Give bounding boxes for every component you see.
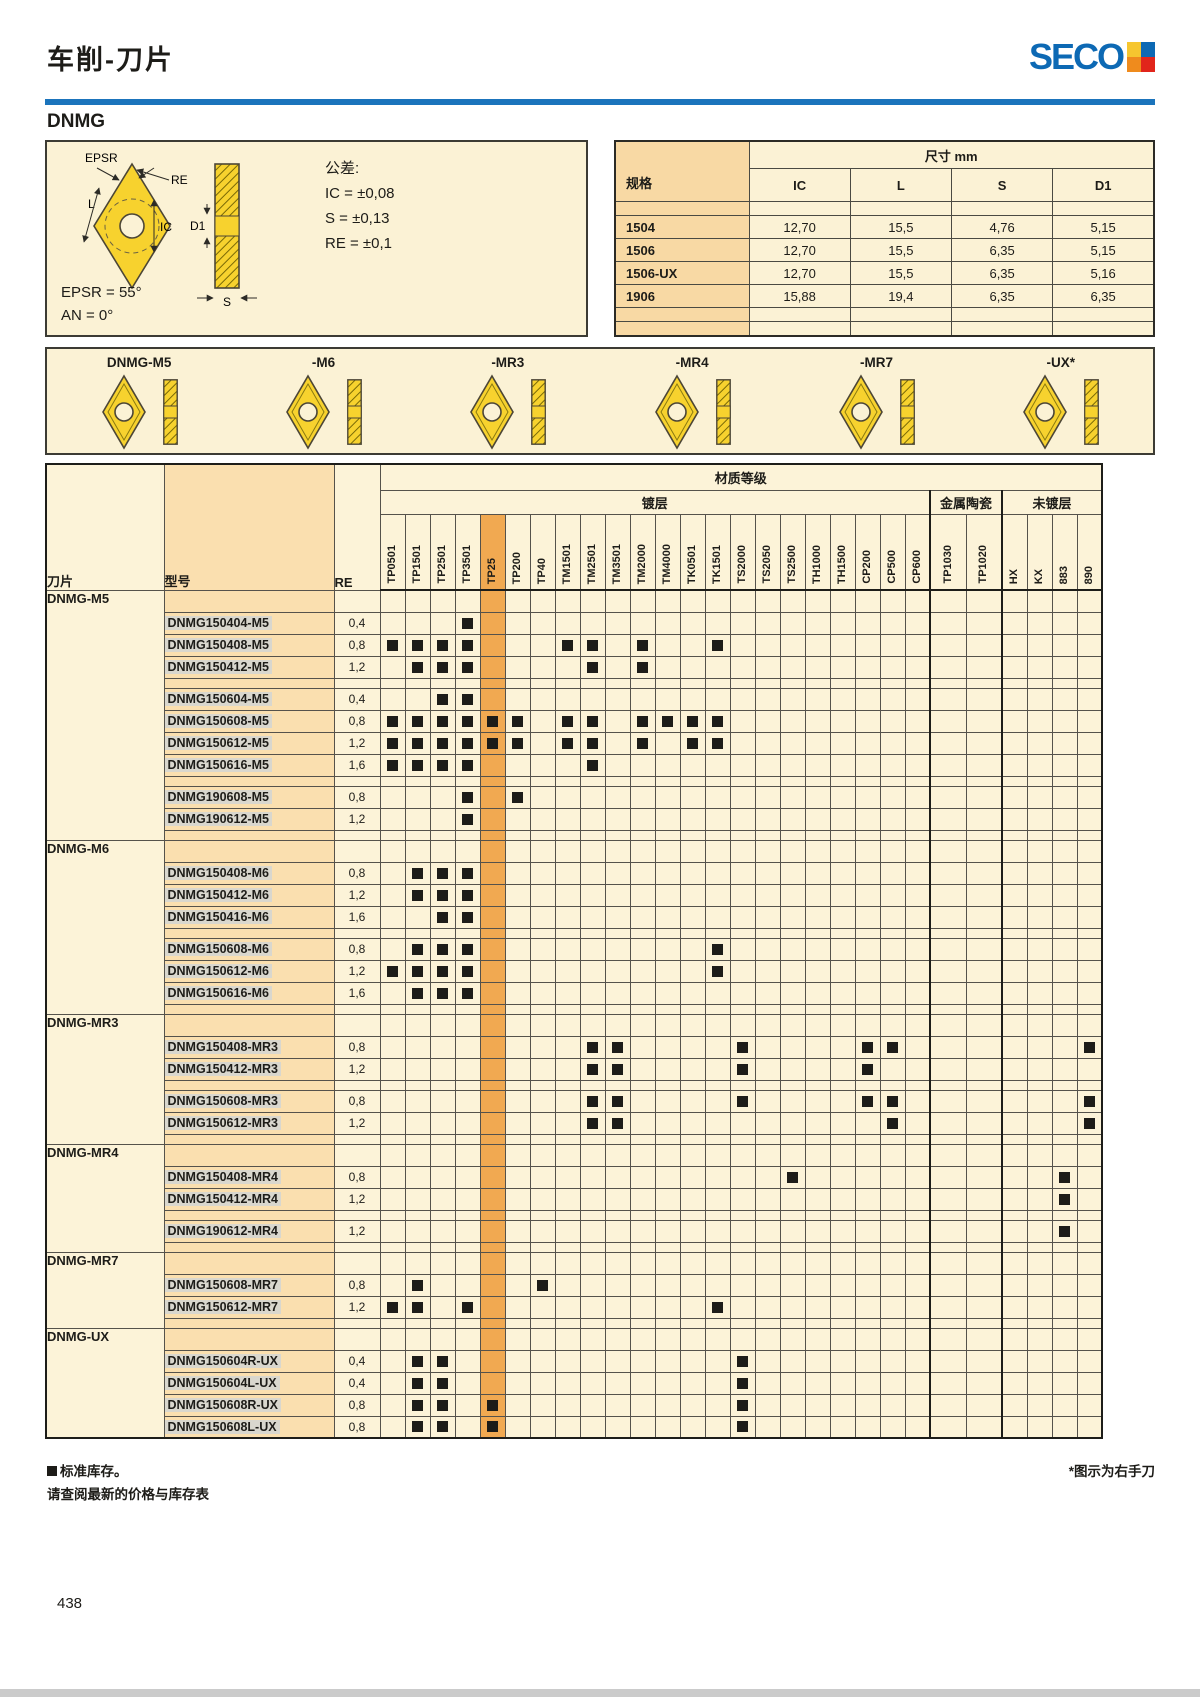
grade-cell <box>630 1134 655 1144</box>
grade-cell <box>966 656 1002 678</box>
model-cell <box>164 830 334 840</box>
matrix-row: DNMG190612-MR41,2 <box>46 1220 1102 1242</box>
dim-row <box>615 202 1154 216</box>
grade-cell <box>655 754 680 776</box>
grade-cell <box>605 634 630 656</box>
re-cell: 1,2 <box>334 960 380 982</box>
grade-cell <box>405 1004 430 1014</box>
dim-value-cell <box>1053 202 1154 216</box>
grade-cell <box>480 1014 505 1036</box>
grade-cell <box>805 776 830 786</box>
grade-cell <box>780 960 805 982</box>
stock-mark <box>412 988 423 999</box>
grade-cell <box>530 808 555 830</box>
grade-cell <box>655 612 680 634</box>
grade-cell <box>430 1036 455 1058</box>
stock-mark <box>1059 1172 1070 1183</box>
grade-cell <box>930 1080 966 1090</box>
grade-cell <box>680 1144 705 1166</box>
dim-value-cell <box>850 202 951 216</box>
grade-cell <box>805 1328 830 1350</box>
grade-cell <box>655 840 680 862</box>
grade-cell <box>905 732 930 754</box>
grade-cell <box>505 1004 530 1014</box>
material-grade-header: 材质等级 <box>380 464 1102 490</box>
dim-value-cell: 6,35 <box>1053 285 1154 308</box>
grade-cell <box>880 906 905 928</box>
grade-cell <box>755 1296 780 1318</box>
grade-cell <box>530 776 555 786</box>
grade-cell <box>555 1372 580 1394</box>
grade-cell <box>1077 710 1102 732</box>
grade-cell <box>855 1080 880 1090</box>
grade-cell <box>380 1112 405 1134</box>
stock-mark <box>462 944 473 955</box>
grade-cell <box>805 590 830 612</box>
grade-cell <box>1027 938 1052 960</box>
re-cell: 1,6 <box>334 754 380 776</box>
grade-cell <box>966 830 1002 840</box>
grade-cell <box>780 1328 805 1350</box>
grade-cell <box>830 1080 855 1090</box>
grade-cell <box>555 1004 580 1014</box>
grade-cell <box>755 776 780 786</box>
grade-cell <box>505 754 530 776</box>
grade-cell <box>1077 830 1102 840</box>
stock-mark <box>737 1096 748 1107</box>
grade-cell <box>405 1090 430 1112</box>
dim-value-cell <box>952 202 1053 216</box>
grade-cell <box>480 1144 505 1166</box>
grade-cell <box>505 1416 530 1438</box>
grade-cell <box>730 1058 755 1080</box>
grade-cell <box>705 1252 730 1274</box>
grade-cell <box>1027 808 1052 830</box>
grade-cell <box>630 982 655 1004</box>
matrix-row: DNMG150612-MR31,2 <box>46 1112 1102 1134</box>
grade-cell <box>405 938 430 960</box>
grade-cell <box>1077 786 1102 808</box>
stock-mark <box>737 1378 748 1389</box>
grade-cell <box>730 688 755 710</box>
grade-cell <box>880 688 905 710</box>
grade-cell <box>605 1004 630 1014</box>
grade-cell <box>966 960 1002 982</box>
grade-cell <box>830 1328 855 1350</box>
grade-cell <box>505 1296 530 1318</box>
grade-cell <box>880 1036 905 1058</box>
grade-cell <box>530 1318 555 1328</box>
grade-cell <box>630 1036 655 1058</box>
grade-cell <box>755 612 780 634</box>
grade-cell <box>830 830 855 840</box>
grade-cell <box>630 1112 655 1134</box>
stock-mark <box>412 868 423 879</box>
grade-cell <box>680 1014 705 1036</box>
grade-cell <box>705 1296 730 1318</box>
grade-cell <box>680 1242 705 1252</box>
grade-cell <box>605 830 630 840</box>
grade-cell <box>380 1210 405 1220</box>
grade-cell <box>380 1080 405 1090</box>
grade-cell <box>1077 1274 1102 1296</box>
grade-cell <box>780 1004 805 1014</box>
grade-cell <box>855 928 880 938</box>
grade-cell <box>880 1014 905 1036</box>
grade-cell <box>1077 906 1102 928</box>
grade-cell <box>455 830 480 840</box>
grade-cell <box>580 1004 605 1014</box>
grade-cell <box>780 928 805 938</box>
grade-cell <box>730 634 755 656</box>
grade-cell <box>655 1090 680 1112</box>
grade-cell <box>530 1394 555 1416</box>
grade-cell <box>705 590 730 612</box>
insert-front-view <box>101 374 147 450</box>
grade-cell <box>480 1242 505 1252</box>
grade-cell <box>1077 1242 1102 1252</box>
seco-logo: SECO <box>1029 42 1155 72</box>
product-series-title: DNMG <box>47 111 105 133</box>
grade-cell <box>705 786 730 808</box>
grade-cell <box>430 1004 455 1014</box>
grade-cell <box>455 1220 480 1242</box>
stock-mark <box>462 966 473 977</box>
grade-cell <box>605 612 630 634</box>
grade-cell <box>1052 1134 1077 1144</box>
dim-value-cell: 19,4 <box>850 285 951 308</box>
grade-cell <box>705 1166 730 1188</box>
grade-cell <box>405 960 430 982</box>
grade-cell <box>880 1394 905 1416</box>
grade-cell <box>380 1036 405 1058</box>
stock-mark <box>437 738 448 749</box>
grade-cell <box>830 928 855 938</box>
geometry-label: -MR4 <box>612 355 772 370</box>
grade-cell <box>830 656 855 678</box>
grade-cell <box>805 1058 830 1080</box>
grade-cell <box>1002 754 1027 776</box>
grade-cell <box>805 928 830 938</box>
grade-cell <box>655 1296 680 1318</box>
grade-cell <box>830 1058 855 1080</box>
grade-cell <box>830 732 855 754</box>
grade-cell <box>1002 732 1027 754</box>
grade-cell <box>905 1166 930 1188</box>
grade-cell <box>655 1210 680 1220</box>
header-rule <box>45 99 1155 105</box>
stock-mark <box>712 966 723 977</box>
model-cell <box>164 840 334 862</box>
grade-cell <box>505 590 530 612</box>
grade-cell <box>430 1220 455 1242</box>
grade-cell <box>405 928 430 938</box>
grade-cell <box>1002 1188 1027 1210</box>
grade-cell <box>830 1036 855 1058</box>
grade-cell <box>905 786 930 808</box>
grade-cell <box>555 590 580 612</box>
re-cell <box>334 1004 380 1014</box>
grade-cell <box>905 1296 930 1318</box>
grade-cell <box>580 1350 605 1372</box>
grade-cell <box>855 862 880 884</box>
grade-cell <box>505 1166 530 1188</box>
grade-cell <box>680 1058 705 1080</box>
grade-cell <box>880 1318 905 1328</box>
group-label: DNMG-UX <box>46 1328 164 1438</box>
grade-cell <box>705 612 730 634</box>
grade-cell <box>530 906 555 928</box>
grade-cell <box>1027 1166 1052 1188</box>
re-cell: 0,8 <box>334 1416 380 1438</box>
grade-cell <box>805 1166 830 1188</box>
stock-mark <box>1084 1042 1095 1053</box>
grade-cell <box>930 1144 966 1166</box>
grade-cell <box>780 1274 805 1296</box>
re-cell: 1,2 <box>334 1058 380 1080</box>
model-cell <box>164 1014 334 1036</box>
dim-row <box>615 308 1154 322</box>
grade-cell <box>680 754 705 776</box>
grade-cell <box>530 678 555 688</box>
grade-cell <box>905 1350 930 1372</box>
stock-mark <box>412 640 423 651</box>
matrix-row: DNMG150616-M61,6 <box>46 982 1102 1004</box>
grade-cell <box>580 678 605 688</box>
group-label: DNMG-MR3 <box>46 1014 164 1144</box>
grade-cell <box>705 1004 730 1014</box>
grade-cell <box>505 884 530 906</box>
matrix-row: DNMG-UX <box>46 1328 1102 1350</box>
re-cell: 0,8 <box>334 1090 380 1112</box>
grade-cell <box>880 808 905 830</box>
grade-cell <box>380 830 405 840</box>
grade-cell <box>530 1252 555 1274</box>
grade-cell <box>580 884 605 906</box>
grade-cell <box>505 1090 530 1112</box>
grade-cell <box>705 754 730 776</box>
grade-cell <box>655 1328 680 1350</box>
grade-cell <box>655 1112 680 1134</box>
grade-cell <box>905 1144 930 1166</box>
grade-cell <box>405 1242 430 1252</box>
stock-mark <box>387 738 398 749</box>
grade-cell <box>730 862 755 884</box>
grade-cell <box>530 1058 555 1080</box>
grade-cell <box>905 612 930 634</box>
grade-cell <box>880 1296 905 1318</box>
re-cell: 0,8 <box>334 634 380 656</box>
grade-cell <box>830 1166 855 1188</box>
grade-cell <box>680 1328 705 1350</box>
grade-cell <box>855 1416 880 1438</box>
grade-cell <box>380 960 405 982</box>
grade-column-header: TP25 <box>480 514 505 590</box>
grade-cell <box>730 1328 755 1350</box>
grade-cell <box>1002 776 1027 786</box>
matrix-row: DNMG-M5 <box>46 590 1102 612</box>
grade-cell <box>655 1014 680 1036</box>
matrix-row: DNMG150604R-UX0,4 <box>46 1350 1102 1372</box>
grade-cell <box>830 590 855 612</box>
grade-cell <box>630 1188 655 1210</box>
grade-cell <box>755 938 780 960</box>
grade-cell <box>680 656 705 678</box>
grade-cell <box>630 1210 655 1220</box>
grade-cell <box>505 1112 530 1134</box>
matrix-row: DNMG-MR7 <box>46 1252 1102 1274</box>
grade-cell <box>530 884 555 906</box>
grade-cell <box>1052 1372 1077 1394</box>
grade-cell <box>880 678 905 688</box>
grade-cell <box>505 982 530 1004</box>
grade-cell <box>780 1210 805 1220</box>
grade-cell <box>755 1058 780 1080</box>
grade-cell <box>705 688 730 710</box>
re-cell <box>334 1014 380 1036</box>
grade-column-header: TS2500 <box>780 514 805 590</box>
grade-cell <box>1052 1296 1077 1318</box>
grade-cell <box>480 1274 505 1296</box>
dim-value-cell <box>749 202 850 216</box>
model-cell: DNMG150412-M5 <box>164 656 334 678</box>
grade-cell <box>1077 982 1102 1004</box>
grade-cell <box>630 1394 655 1416</box>
grade-cell <box>405 1188 430 1210</box>
grade-cell <box>655 786 680 808</box>
grade-cell <box>655 1036 680 1058</box>
stock-mark <box>462 760 473 771</box>
grade-cell <box>630 1166 655 1188</box>
matrix-row: DNMG150404-M50,4 <box>46 612 1102 634</box>
stock-mark <box>512 738 523 749</box>
dim-value-cell: 15,88 <box>749 285 850 308</box>
insert-front-view <box>285 374 331 450</box>
grade-cell <box>605 884 630 906</box>
grade-cell <box>430 1252 455 1274</box>
matrix-row: DNMG150412-MR41,2 <box>46 1188 1102 1210</box>
grade-cell <box>530 612 555 634</box>
grade-cell <box>880 1134 905 1144</box>
grade-column-header: TM4000 <box>655 514 680 590</box>
grade-cell <box>530 1274 555 1296</box>
re-cell: 1,2 <box>334 656 380 678</box>
stock-mark <box>437 868 448 879</box>
grade-cell <box>430 1080 455 1090</box>
model-cell: DNMG150408-MR3 <box>164 1036 334 1058</box>
grade-cell <box>455 1328 480 1350</box>
grade-column-header: KX <box>1027 514 1052 590</box>
grade-cell <box>405 776 430 786</box>
matrix-row: DNMG190608-M50,8 <box>46 786 1102 808</box>
label-d1: D1 <box>190 219 206 233</box>
grade-column-header: TP40 <box>530 514 555 590</box>
grade-cell <box>555 1274 580 1296</box>
dim-spec-label: 规格 <box>615 141 749 202</box>
model-cell: DNMG150608-M5 <box>164 710 334 732</box>
grade-cell <box>1027 1080 1052 1090</box>
grade-cell <box>405 1296 430 1318</box>
grade-cell <box>1002 1416 1027 1438</box>
grade-cell <box>905 688 930 710</box>
grade-cell <box>805 1416 830 1438</box>
grade-cell <box>705 840 730 862</box>
model-cell <box>164 1144 334 1166</box>
grade-cell <box>605 1328 630 1350</box>
grade-cell <box>930 1220 966 1242</box>
grade-cell <box>630 776 655 786</box>
stock-mark <box>612 1096 623 1107</box>
grade-cell <box>1052 1328 1077 1350</box>
grade-cell <box>755 1394 780 1416</box>
grade-cell <box>605 1144 630 1166</box>
grade-cell <box>680 634 705 656</box>
grade-cell <box>830 634 855 656</box>
grade-cell <box>680 1350 705 1372</box>
grade-cell <box>580 1058 605 1080</box>
grade-cell <box>530 830 555 840</box>
grade-cell <box>730 754 755 776</box>
grade-cell <box>580 808 605 830</box>
grade-cell <box>1002 1318 1027 1328</box>
dim-value-cell: 12,70 <box>749 262 850 285</box>
grade-cell <box>480 1134 505 1144</box>
re-cell: 0,4 <box>334 1372 380 1394</box>
grade-cell <box>580 1318 605 1328</box>
model-cell <box>164 1080 334 1090</box>
grade-cell <box>430 1014 455 1036</box>
grade-cell <box>905 928 930 938</box>
stock-mark <box>537 1280 548 1291</box>
grade-cell <box>880 1242 905 1252</box>
grade-cell <box>580 1328 605 1350</box>
re-cell: 0,8 <box>334 1036 380 1058</box>
grade-cell <box>605 1416 630 1438</box>
grade-cell <box>880 1166 905 1188</box>
grade-cell <box>755 656 780 678</box>
label-ic: IC <box>160 220 172 234</box>
grade-cell <box>1002 1220 1027 1242</box>
grade-cell <box>830 862 855 884</box>
grade-cell <box>780 1188 805 1210</box>
grade-cell <box>880 656 905 678</box>
stock-mark <box>387 966 398 977</box>
model-cell: DNMG150612-M5 <box>164 732 334 754</box>
grade-cell <box>930 840 966 862</box>
model-cell: DNMG150616-M6 <box>164 982 334 1004</box>
grade-cell <box>830 1318 855 1328</box>
grade-cell <box>380 688 405 710</box>
grade-cell <box>480 634 505 656</box>
seco-logo-mark-icon <box>1127 42 1155 72</box>
grade-cell <box>405 1112 430 1134</box>
grade-cell <box>455 840 480 862</box>
grade-column-header: TH1000 <box>805 514 830 590</box>
grade-column-header: CP200 <box>855 514 880 590</box>
grade-cell <box>805 688 830 710</box>
grade-cell <box>380 938 405 960</box>
grade-cell <box>380 1274 405 1296</box>
matrix-row <box>46 1242 1102 1252</box>
grade-cell <box>755 1416 780 1438</box>
grade-cell <box>966 754 1002 776</box>
grade-cell <box>880 830 905 840</box>
grade-cell <box>880 1058 905 1080</box>
grade-cell <box>705 862 730 884</box>
grade-cell <box>705 1090 730 1112</box>
model-cell: DNMG150408-M5 <box>164 634 334 656</box>
grade-cell <box>655 1134 680 1144</box>
